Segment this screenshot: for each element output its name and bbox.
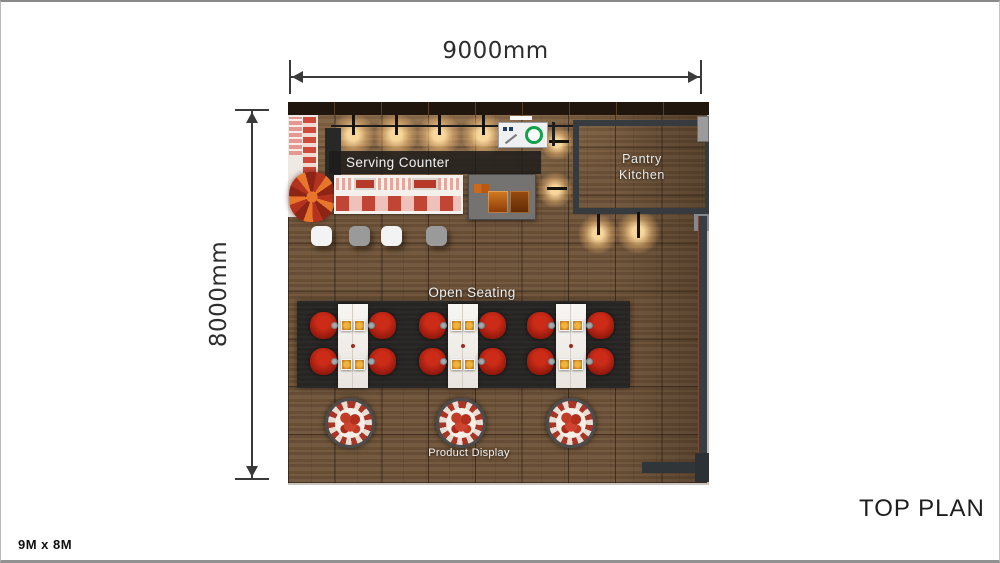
plate — [341, 320, 352, 331]
pendant-light-icon — [482, 115, 485, 135]
wall-shelf — [510, 116, 532, 120]
arrow-down-icon — [246, 466, 258, 477]
chair — [479, 348, 506, 375]
dimension-height-label: 8000mm — [206, 224, 232, 364]
pendant-light-icon — [438, 115, 441, 135]
chair — [369, 348, 396, 375]
light-glow — [537, 172, 573, 208]
dimension-line — [291, 76, 700, 78]
chair — [419, 312, 446, 339]
coffee-island — [468, 174, 536, 220]
wall-bench — [698, 216, 707, 458]
warmer-box — [488, 191, 508, 213]
plate — [464, 359, 475, 370]
page-title: TOP PLAN — [859, 495, 985, 523]
warmer-box — [510, 191, 529, 213]
faucet-icon — [505, 134, 517, 144]
wall-partition — [552, 122, 555, 146]
plate — [354, 320, 365, 331]
warmer-box — [474, 184, 481, 193]
pendant-light-icon — [637, 212, 640, 238]
plate — [451, 359, 462, 370]
open-seating-label: Open Seating — [392, 285, 552, 300]
chair — [527, 312, 554, 339]
product-display-table — [325, 398, 375, 448]
serving-counter-label: Serving Counter — [329, 151, 541, 174]
arrow-up-icon — [246, 112, 258, 123]
pastry-row — [336, 196, 461, 211]
product-display-label: Product Display — [389, 447, 549, 459]
corner-bench — [695, 453, 709, 482]
plate — [451, 320, 462, 331]
dimension-line — [251, 111, 253, 478]
chair — [527, 348, 554, 375]
wall-light-icon — [547, 187, 567, 190]
chair — [369, 312, 396, 339]
chair — [587, 348, 614, 375]
pendant-light-icon — [395, 115, 398, 135]
plate — [572, 359, 583, 370]
chair — [310, 348, 337, 375]
plate — [572, 320, 583, 331]
red-tray — [354, 178, 376, 190]
floor-plan: Serving Counter Pantry Kitchen — [288, 102, 709, 485]
dimension-tick — [235, 109, 269, 111]
arrow-left-icon — [292, 71, 303, 83]
corner-bench — [642, 462, 699, 473]
slide-canvas: 9000mm 8000mm — [0, 0, 1000, 563]
product-display-table — [546, 398, 596, 448]
serving-counter — [334, 175, 463, 214]
plate — [559, 359, 570, 370]
pendant-light-icon — [597, 214, 600, 235]
dimension-tick — [235, 478, 269, 480]
dimension-width-label: 9000mm — [289, 38, 702, 64]
chair — [587, 312, 614, 339]
pantry-label-line1: Pantry — [622, 151, 662, 167]
appliance-dot — [503, 127, 507, 131]
chair — [310, 312, 337, 339]
dining-table — [448, 304, 478, 388]
wall-panel — [697, 116, 709, 142]
dining-table — [338, 304, 368, 388]
dimension-tick — [289, 60, 291, 94]
size-note: 9M x 8M — [18, 537, 72, 552]
plate — [354, 359, 365, 370]
plate — [464, 320, 475, 331]
appliance-dot — [509, 127, 513, 131]
plate — [341, 359, 352, 370]
stool — [381, 226, 402, 246]
stool — [311, 226, 332, 246]
pastry-rack — [289, 117, 302, 155]
dimension-height: 8000mm — [235, 109, 269, 480]
stool — [349, 226, 370, 246]
serving-counter-label-text: Serving Counter — [346, 155, 450, 170]
sink-basin-icon — [525, 126, 543, 144]
sink-station — [498, 122, 548, 148]
product-display-table — [436, 398, 486, 448]
back-wall — [288, 102, 709, 115]
chair — [419, 348, 446, 375]
dimension-tick — [700, 60, 702, 94]
arrow-right-icon — [688, 71, 699, 83]
dining-table — [556, 304, 586, 388]
pantry-label-line2: Kitchen — [619, 167, 665, 183]
floral-decor — [289, 172, 335, 222]
stool — [426, 226, 447, 246]
plate — [559, 320, 570, 331]
chair — [479, 312, 506, 339]
pendant-light-icon — [352, 115, 355, 135]
pantry-kitchen-room: Pantry Kitchen — [573, 120, 709, 214]
dimension-width: 9000mm — [289, 60, 702, 94]
red-tray — [412, 178, 438, 190]
